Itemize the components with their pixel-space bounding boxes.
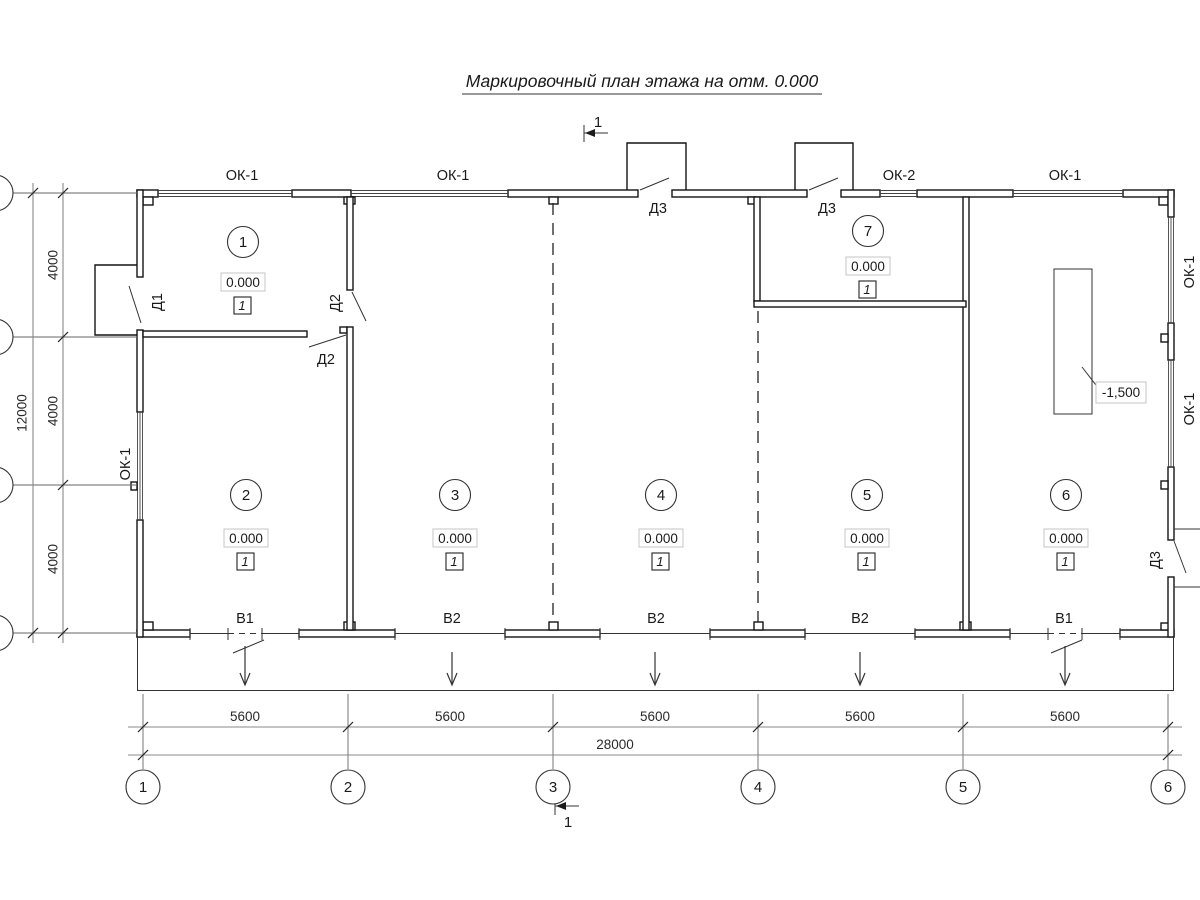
- section-mark-top: 1: [584, 114, 608, 142]
- room-number: 2: [242, 487, 250, 504]
- gate-leaf-line: [233, 640, 264, 653]
- door-label-d3-right: Д3: [1148, 551, 1164, 569]
- room-5-label: 5 0.000 1: [845, 480, 889, 571]
- wall-room1-right-upper: [347, 197, 353, 290]
- vent-arrow-4: [855, 652, 865, 685]
- room-number: 3: [451, 487, 459, 504]
- room-elevation: 0.000: [850, 531, 884, 546]
- wall-axis5: [963, 197, 969, 630]
- room-2-label: 2 0.000 1: [224, 480, 268, 571]
- pit-elevation-label: -1,500: [1102, 385, 1140, 400]
- dim-5600-3: 5600: [640, 709, 670, 724]
- interior-walls: [143, 197, 969, 630]
- vent-arrow-1: [240, 646, 250, 685]
- dim-28000-total: 28000: [596, 737, 634, 752]
- door-d3-2-swing: [809, 178, 838, 190]
- room-number: 7: [864, 223, 872, 240]
- axis-2: 2: [344, 779, 352, 796]
- room-number: 5: [863, 487, 871, 504]
- door-label-d1: Д1: [150, 293, 166, 311]
- vent-arrow-2: [447, 652, 457, 685]
- window-label-ok1-top-2: ОК-1: [437, 168, 470, 184]
- dimensions-left: 4000 4000 4000 12000: [0, 175, 137, 651]
- vent-label-v2-3: В2: [851, 611, 869, 627]
- door-d1-swing: [129, 286, 141, 323]
- section-number-top: 1: [594, 114, 602, 131]
- window-ok1-top-1: [158, 191, 292, 197]
- window-label-ok2-top: ОК-2: [883, 168, 916, 184]
- room-number: 6: [1062, 487, 1070, 504]
- dim-5600-1: 5600: [230, 709, 260, 724]
- window-label-ok1-left: ОК-1: [118, 448, 134, 481]
- room-4-label: 4 0.000 1: [639, 480, 683, 571]
- wall-room1-bottom: [143, 331, 307, 337]
- window-label-ok1-top-1: ОК-1: [226, 168, 259, 184]
- door-d3-right-swing: [1174, 541, 1186, 573]
- room-1-label: 1 0.000 1: [221, 227, 265, 315]
- axis-6: 6: [1164, 779, 1172, 796]
- dim-5600-5: 5600: [1050, 709, 1080, 724]
- room-zone: 1: [1061, 554, 1068, 569]
- room-elevation: 0.000: [644, 531, 678, 546]
- window-ok1-left: [138, 412, 143, 520]
- room-zone: 1: [862, 554, 869, 569]
- vent-label-v2-1: В2: [443, 611, 461, 627]
- wall-room7-left: [754, 197, 760, 301]
- room-elevation: 0.000: [229, 531, 263, 546]
- room-zone: 1: [238, 298, 245, 313]
- room-zone: 1: [863, 282, 870, 297]
- dim-12000-total: 12000: [15, 394, 30, 432]
- axis-5: 5: [959, 779, 967, 796]
- door-d2-horizontal-swing: [309, 335, 346, 347]
- axis-4: 4: [754, 779, 762, 796]
- window-ok2-top: [880, 191, 917, 197]
- door-label-d3-top-1: Д3: [649, 201, 667, 217]
- room-zone: 1: [656, 554, 663, 569]
- axis-bubbles-bottom: 1 2 3 4 5 6: [126, 770, 1185, 804]
- room-6-label: 6 0.000 1: [1044, 480, 1088, 571]
- floor-plan-canvas: Маркировочный план этажа на отм. 0.000 1…: [0, 0, 1200, 900]
- room-number: 4: [657, 487, 665, 504]
- wall-axis2-lower: [347, 327, 353, 630]
- porch-d3-2: [795, 143, 853, 190]
- door-label-d2-vertical: Д2: [328, 294, 344, 312]
- room-7-label: 7 0.000 1: [846, 216, 890, 299]
- doors: [95, 143, 1200, 587]
- vent-label-v1-1: В1: [236, 611, 254, 627]
- vent-arrow-3: [650, 652, 660, 685]
- room-elevation: 0.000: [851, 259, 885, 274]
- door-d3-1-swing: [640, 178, 669, 190]
- vent-arrows: [240, 646, 1070, 685]
- axis-bubbles-left: [0, 175, 13, 651]
- dim-4000-3: 4000: [46, 544, 61, 574]
- pit-outline: [1054, 269, 1092, 414]
- vent-arrow-5: [1060, 646, 1070, 685]
- window-ok1-right-2: [1169, 360, 1174, 467]
- page-title: Маркировочный план этажа на отм. 0.000: [466, 71, 819, 91]
- dim-4000-2: 4000: [46, 396, 61, 426]
- wall-room7-bottom: [754, 301, 966, 307]
- pit: -1,500: [1054, 269, 1146, 414]
- window-label-ok1-top-3: ОК-1: [1049, 168, 1082, 184]
- axis-1: 1: [139, 779, 147, 796]
- window-label-ok1-right-2: ОК-1: [1182, 393, 1198, 426]
- door-d2-vertical-swing: [352, 292, 366, 321]
- gate-leaf-line: [1051, 640, 1082, 653]
- section-number-bottom: 1: [564, 814, 572, 831]
- door-label-d3-top-2: Д3: [818, 201, 836, 217]
- dimensions-bottom: 5600 5600 5600 5600 5600 28000 1 2 3 4 5…: [126, 694, 1185, 804]
- room-elevation: 0.000: [1049, 531, 1083, 546]
- door-label-d2-horizontal: Д2: [317, 352, 335, 368]
- window-ok1-right-1: [1169, 217, 1174, 323]
- room-elevation: 0.000: [226, 275, 260, 290]
- window-label-ok1-right-1: ОК-1: [1182, 256, 1198, 289]
- dim-5600-2: 5600: [435, 709, 465, 724]
- window-ok1-top-2: [351, 191, 508, 197]
- room-elevation: 0.000: [438, 531, 472, 546]
- drawing-title: Маркировочный план этажа на отм. 0.000: [462, 71, 822, 94]
- room-3-label: 3 0.000 1: [433, 480, 477, 571]
- dim-5600-4: 5600: [845, 709, 875, 724]
- axis-3: 3: [549, 779, 557, 796]
- room-zone: 1: [241, 554, 248, 569]
- dim-4000-1: 4000: [46, 250, 61, 280]
- window-ok1-top-3: [1013, 191, 1123, 197]
- room-number: 1: [239, 234, 247, 251]
- room-zone: 1: [450, 554, 457, 569]
- porch-d1: [95, 265, 137, 335]
- vent-label-v2-2: В2: [647, 611, 665, 627]
- vent-label-v1-2: В1: [1055, 611, 1073, 627]
